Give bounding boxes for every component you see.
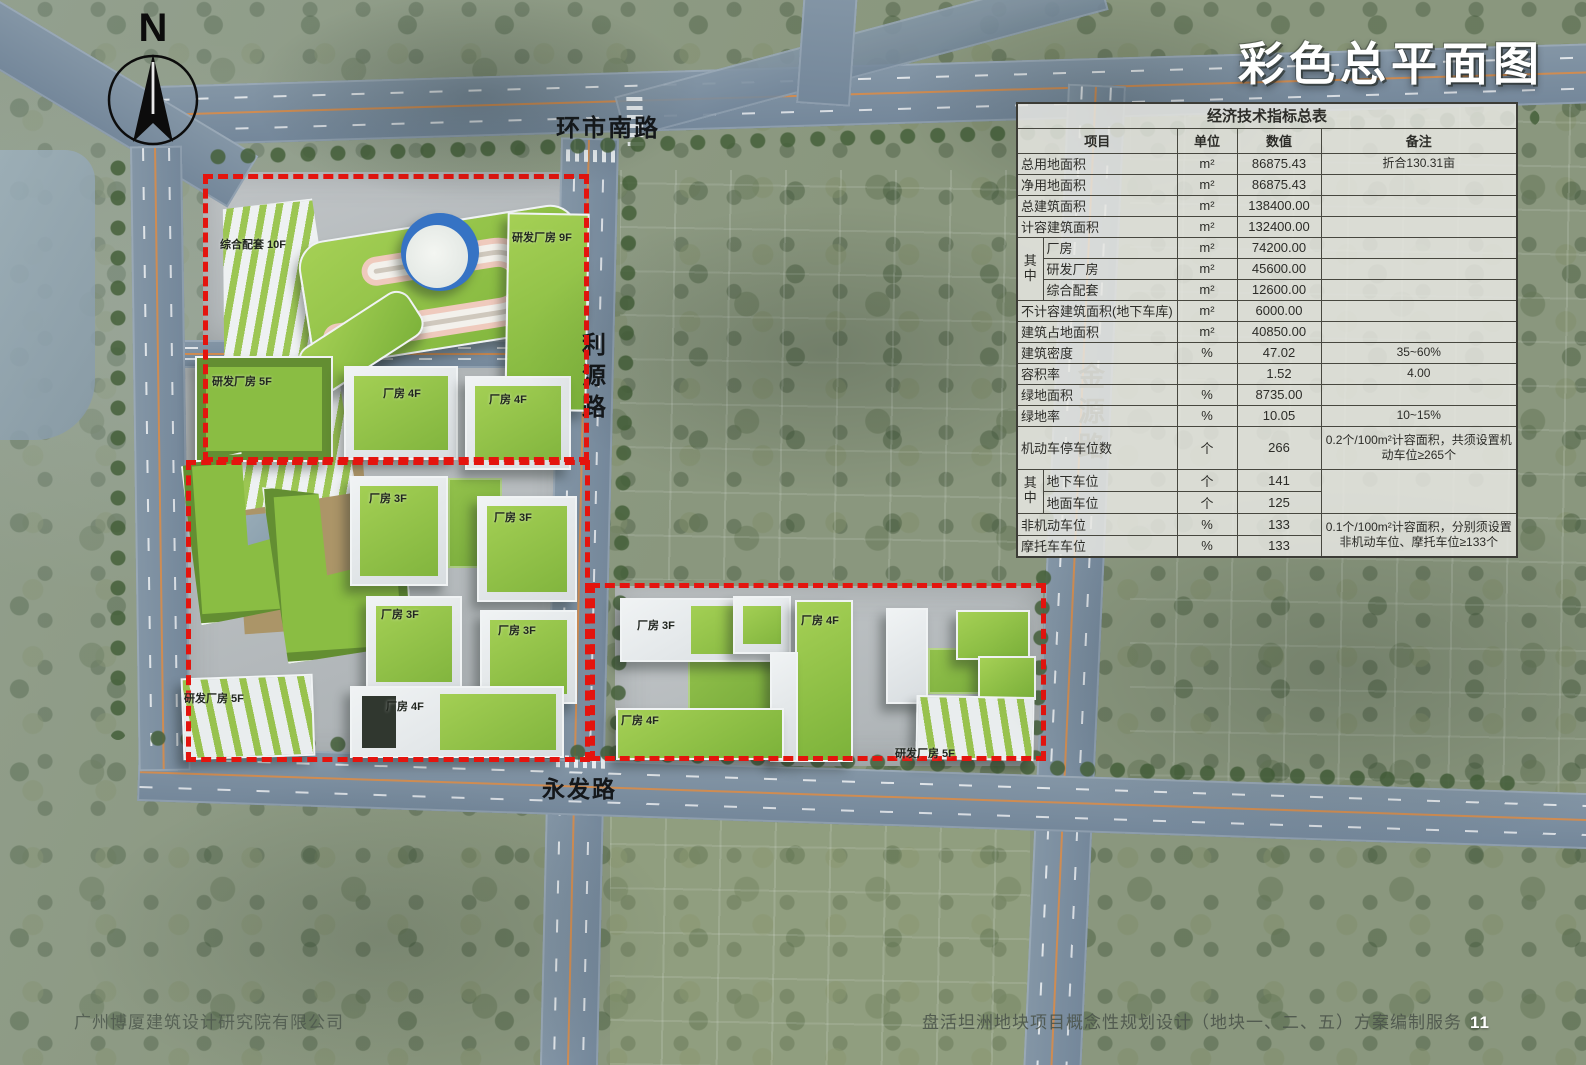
building-label: 厂房 3F [381,606,419,622]
cell-value: 86875.43 [1237,174,1321,195]
building-label: 厂房 3F [494,509,532,525]
cell-value: 138400.00 [1237,195,1321,216]
building-label: 研发厂房 9F [512,229,572,245]
cell-remark: 折合130.31亩 [1321,153,1517,174]
building-label: 厂房 4F [489,391,527,407]
compass-n-label: N [103,8,203,48]
cell-remark [1321,174,1517,195]
table-row: 建筑占地面积 m² 40850.00 [1017,321,1517,342]
cell-item: 地下车位 [1043,469,1177,491]
cell-value: 1.52 [1237,363,1321,384]
table-row: 绿地面积 % 8735.00 [1017,384,1517,405]
table-row: 不计容建筑面积(地下车库) m² 6000.00 [1017,300,1517,321]
cell-item: 摩托车车位 [1017,535,1177,557]
road-label-liyuan: 利源路 [582,330,609,424]
building-label: 厂房 3F [498,622,536,638]
building-label: 厂房 4F [386,698,424,714]
cell-item: 总建筑面积 [1017,195,1177,216]
table-row: 绿地率 % 10.05 10~15% [1017,405,1517,426]
farm-fields-center [620,170,1050,580]
building-yanfa-5f-upper [195,356,333,462]
water-pond [0,150,95,440]
group-label: 其中 [1017,237,1043,300]
cell-unit: m² [1177,195,1237,216]
cell-value: 266 [1237,426,1321,469]
cell-remark: 0.1个/100m²计容面积，分别须设置非机动车位、摩托车位≥133个 [1321,513,1517,557]
building-label: 厂房 4F [383,385,421,401]
cell-unit: 个 [1177,426,1237,469]
road-north-vertical [796,0,858,107]
table-row: 容积率 1.52 4.00 [1017,363,1517,384]
building-p5-mid-white [886,608,928,704]
table-row: 净用地面积 m² 86875.43 [1017,174,1517,195]
table-row: 其中 厂房 m² 74200.00 [1017,237,1517,258]
cell-remark [1321,216,1517,237]
cell-value: 74200.00 [1237,237,1321,258]
economic-indicators-table: 经济技术指标总表 项目 单位 数值 备注 总用地面积 m² 86875.43 折… [1016,102,1518,558]
cell-item: 绿地面积 [1017,384,1177,405]
table-row: 总用地面积 m² 86875.43 折合130.31亩 [1017,153,1517,174]
cell-item: 建筑密度 [1017,342,1177,363]
building-changfang-4f-a [344,366,458,460]
cell-item: 绿地率 [1017,405,1177,426]
building-label: 综合配套 10F [220,236,286,252]
cell-remark [1321,237,1517,258]
cell-value: 141 [1237,469,1321,491]
cell-unit: m² [1177,237,1237,258]
cell-remark [1321,195,1517,216]
cell-item: 地面车位 [1043,491,1177,513]
cell-unit: % [1177,384,1237,405]
cell-value: 10.05 [1237,405,1321,426]
cell-unit: % [1177,535,1237,557]
footer-project: 盘活坦洲地块项目概念性规划设计（地块一、二、五）方案编制服务11 [922,1008,1490,1033]
building-p5-green-a [956,610,1030,660]
building-yanfa-5f-lower [181,674,316,761]
road-label-huanshi: 环市南路 [556,108,660,143]
cell-unit: % [1177,513,1237,535]
col-header-value: 数值 [1237,128,1321,153]
cell-value: 133 [1237,535,1321,557]
cell-remark: 35~60% [1321,342,1517,363]
cell-unit: m² [1177,300,1237,321]
building-label: 厂房 4F [801,612,839,628]
cell-item: 机动车停车位数 [1017,426,1177,469]
cell-remark [1321,279,1517,300]
cell-remark: 0.2个/100m²计容面积，共须设置机动车位≥265个 [1321,426,1517,469]
table-row: 其中 地下车位 个 141 [1017,469,1517,491]
table-row: 非机动车位 % 133 0.1个/100m²计容面积，分别须设置非机动车位、摩托… [1017,513,1517,535]
table-title: 经济技术指标总表 [1017,103,1517,128]
building-label: 厂房 3F [637,617,675,633]
building-label: 研发厂房 5F [184,690,244,706]
cell-unit [1177,363,1237,384]
cell-value: 6000.00 [1237,300,1321,321]
cell-remark [1321,300,1517,321]
cell-unit: % [1177,342,1237,363]
table-row: 计容建筑面积 m² 132400.00 [1017,216,1517,237]
economic-indicators-panel: 经济技术指标总表 项目 单位 数值 备注 总用地面积 m² 86875.43 折… [1016,102,1516,558]
table-row: 研发厂房 m² 45600.00 [1017,258,1517,279]
cell-remark [1321,384,1517,405]
cell-value: 40850.00 [1237,321,1321,342]
cell-remark: 4.00 [1321,363,1517,384]
cell-item: 容积率 [1017,363,1177,384]
cell-item: 建筑占地面积 [1017,321,1177,342]
cell-unit: 个 [1177,469,1237,491]
cell-value: 125 [1237,491,1321,513]
building-changfang-4f-long [350,686,564,758]
building-label: 研发厂房 5F [895,745,955,761]
table-row: 总建筑面积 m² 138400.00 [1017,195,1517,216]
cell-unit: m² [1177,279,1237,300]
cell-value: 12600.00 [1237,279,1321,300]
page-title: 彩色总平面图 [1238,28,1544,94]
cell-item: 净用地面积 [1017,174,1177,195]
table-row: 建筑密度 % 47.02 35~60% [1017,342,1517,363]
page-number: 11 [1470,1013,1490,1032]
building-label: 厂房 4F [621,712,659,728]
cell-unit: m² [1177,174,1237,195]
cell-unit: m² [1177,321,1237,342]
building-p5-small [733,596,791,654]
cell-value: 8735.00 [1237,384,1321,405]
cell-remark [1321,469,1517,513]
cell-item: 综合配套 [1043,279,1177,300]
cell-remark [1321,321,1517,342]
cell-value: 45600.00 [1237,258,1321,279]
col-header-item: 项目 [1017,128,1177,153]
cell-item: 不计容建筑面积(地下车库) [1017,300,1177,321]
cell-unit: % [1177,405,1237,426]
building-label: 厂房 3F [369,490,407,506]
footer-company: 广州博厦建筑设计研究院有限公司 [74,1008,344,1033]
cell-value: 47.02 [1237,342,1321,363]
footer-project-text: 盘活坦洲地块项目概念性规划设计（地块一、二、五）方案编制服务 [922,1013,1462,1032]
dome-inner [406,225,468,287]
table-row: 综合配套 m² 12600.00 [1017,279,1517,300]
cell-item: 计容建筑面积 [1017,216,1177,237]
compass-rose-icon [103,48,203,150]
dome-building [401,213,479,291]
building-label: 研发厂房 5F [212,373,272,389]
col-header-remark: 备注 [1321,128,1517,153]
building-p5-green-b [978,656,1036,700]
cell-unit: 个 [1177,491,1237,513]
cell-remark [1321,258,1517,279]
group-label: 其中 [1017,469,1043,513]
cell-unit: m² [1177,153,1237,174]
cell-item: 研发厂房 [1043,258,1177,279]
road-label-yongfa: 永发路 [542,770,617,804]
table-row: 机动车停车位数 个 266 0.2个/100m²计容面积，共须设置机动车位≥26… [1017,426,1517,469]
street-trees-west [110,160,126,740]
cell-item: 总用地面积 [1017,153,1177,174]
cell-value: 133 [1237,513,1321,535]
site-plan-page: 综合配套 10F 研发厂房 9F 研发厂房 5F 厂房 4F 厂房 4F 厂房 … [0,0,1586,1065]
compass-north: N [103,8,203,150]
cell-value: 86875.43 [1237,153,1321,174]
cell-item: 厂房 [1043,237,1177,258]
col-header-unit: 单位 [1177,128,1237,153]
cell-value: 132400.00 [1237,216,1321,237]
cell-item: 非机动车位 [1017,513,1177,535]
cell-unit: m² [1177,216,1237,237]
cell-remark: 10~15% [1321,405,1517,426]
cell-unit: m² [1177,258,1237,279]
